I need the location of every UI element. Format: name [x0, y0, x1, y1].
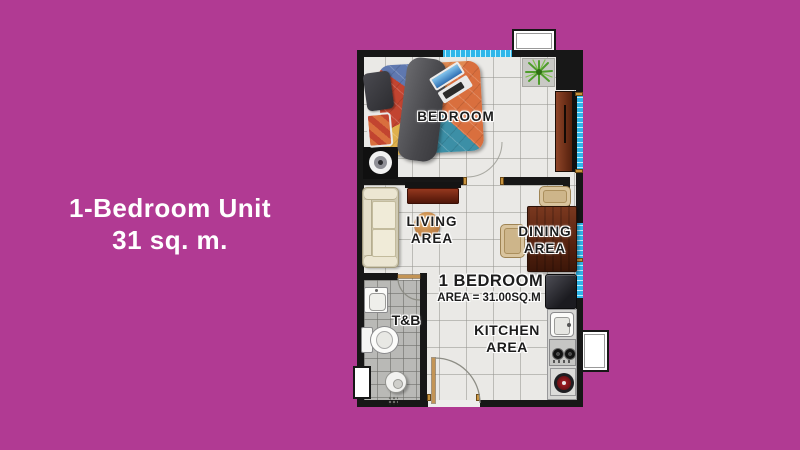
label-bedroom: BEDROOM — [408, 109, 504, 124]
label-unit-type: 1 BEDROOM — [435, 272, 547, 291]
label-toilet-bath: T&B — [380, 312, 432, 328]
floorplan: BEDROOM LIVING AREA DINING AREA T&B KITC… — [350, 25, 612, 425]
unit-name: 1-Bedroom Unit — [30, 192, 310, 224]
label-unit-area: AREA = 31.00SQ.M — [433, 292, 545, 304]
unit-area: 31 sq. m. — [30, 224, 310, 256]
page-background: 1-Bedroom Unit 31 sq. m. — [0, 0, 800, 450]
label-living-area: LIVING AREA — [388, 213, 476, 247]
label-kitchen-area: KITCHEN AREA — [470, 322, 544, 356]
unit-headline: 1-Bedroom Unit 31 sq. m. — [30, 192, 310, 256]
label-dining-area: DINING AREA — [502, 223, 588, 257]
